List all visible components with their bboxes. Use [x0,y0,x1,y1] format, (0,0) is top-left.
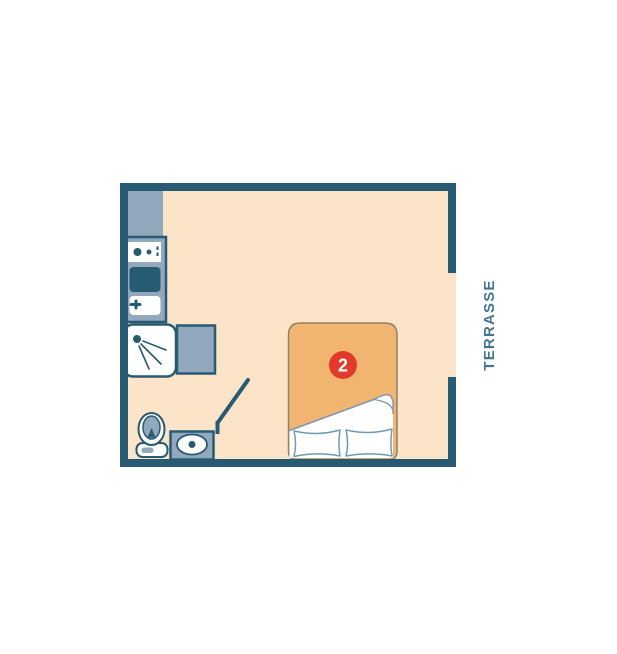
stove-control-icon [157,247,159,251]
wall-left [120,183,128,467]
toilet-flush-button [142,448,154,454]
shower-tray [124,325,176,377]
terrace-label: TERRASSE [481,277,499,373]
toilet [137,413,168,457]
room-badge-number: 2 [338,356,348,376]
bathroom-counter [177,326,215,374]
faucet-icon [135,300,138,310]
wall-right-lower [448,377,456,467]
pillow-right [346,429,392,456]
washbasin-unit [171,432,214,460]
floor-plan-drawing: 2 [0,0,617,654]
stove-burner-large-icon [134,248,142,256]
floor-plan-canvas: 2 TERRASSE [0,0,617,654]
stove-control-icon [157,253,159,257]
wall-top [120,183,456,191]
shower-head-icon [133,335,141,343]
washbasin-drain-icon [189,441,196,448]
room-badge: 2 [329,351,357,379]
double-bed: 2 [289,323,398,460]
stove-burner-small-icon [147,250,152,255]
refrigerator-counter [128,191,163,236]
kitchen-sink-basin [130,267,161,292]
pillow-left [294,430,340,457]
wall-bottom [120,459,456,467]
shower [124,325,176,377]
wall-right-upper [448,183,456,273]
kitchen-unit [123,237,166,322]
stove-top [128,242,161,262]
